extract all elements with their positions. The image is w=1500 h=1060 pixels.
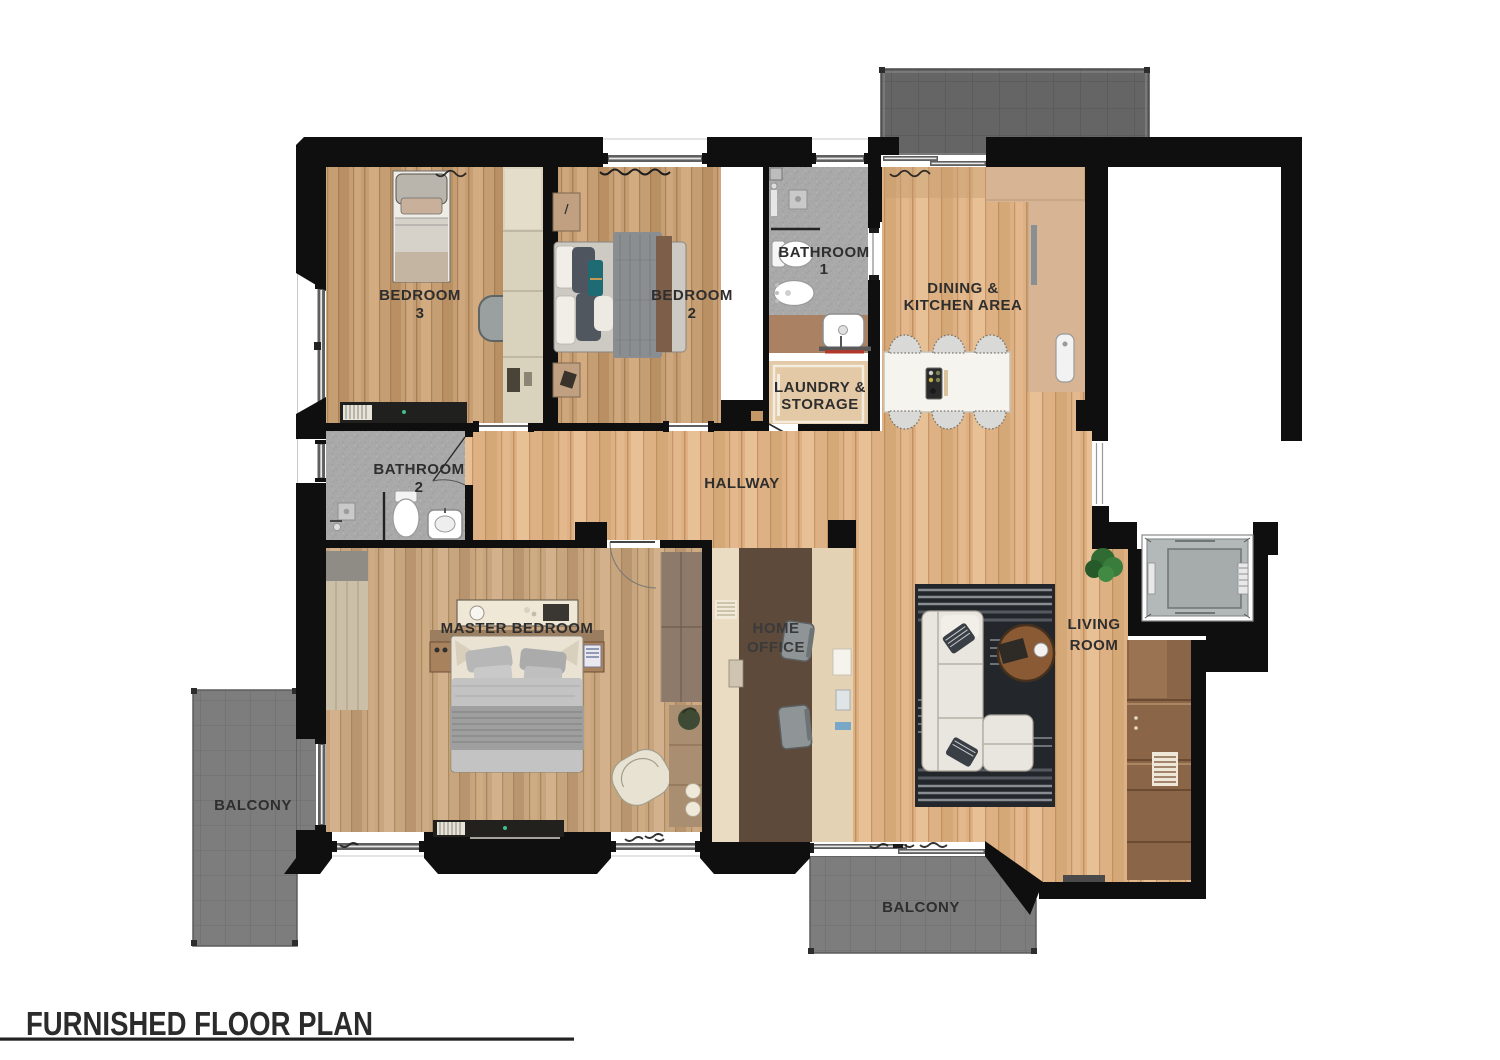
svg-text:BEDROOM: BEDROOM: [651, 287, 733, 304]
svg-text:STORAGE: STORAGE: [781, 396, 858, 413]
svg-text:LIVING: LIVING: [1067, 616, 1120, 633]
svg-text:3: 3: [416, 305, 425, 322]
svg-text:DINING &: DINING &: [927, 280, 999, 297]
svg-text:ROOM: ROOM: [1070, 637, 1119, 654]
svg-text:BEDROOM: BEDROOM: [379, 287, 461, 304]
svg-text:BATHROOM: BATHROOM: [778, 244, 869, 261]
svg-text:BALCONY: BALCONY: [214, 797, 292, 814]
svg-text:2: 2: [688, 305, 697, 322]
svg-text:LAUNDRY &: LAUNDRY &: [774, 379, 866, 396]
svg-text:FURNISHED FLOOR PLAN: FURNISHED FLOOR PLAN: [26, 1005, 373, 1042]
svg-text:2: 2: [415, 479, 424, 496]
svg-text:BATHROOM: BATHROOM: [373, 461, 464, 478]
svg-text:OFFICE: OFFICE: [747, 639, 805, 656]
svg-text:1: 1: [820, 261, 829, 278]
svg-text:BALCONY: BALCONY: [882, 899, 960, 916]
svg-text:HOME: HOME: [753, 620, 800, 637]
svg-text:HALLWAY: HALLWAY: [704, 475, 779, 492]
svg-text:KITCHEN AREA: KITCHEN AREA: [904, 297, 1023, 314]
svg-text:MASTER BEDROOM: MASTER BEDROOM: [441, 620, 594, 637]
